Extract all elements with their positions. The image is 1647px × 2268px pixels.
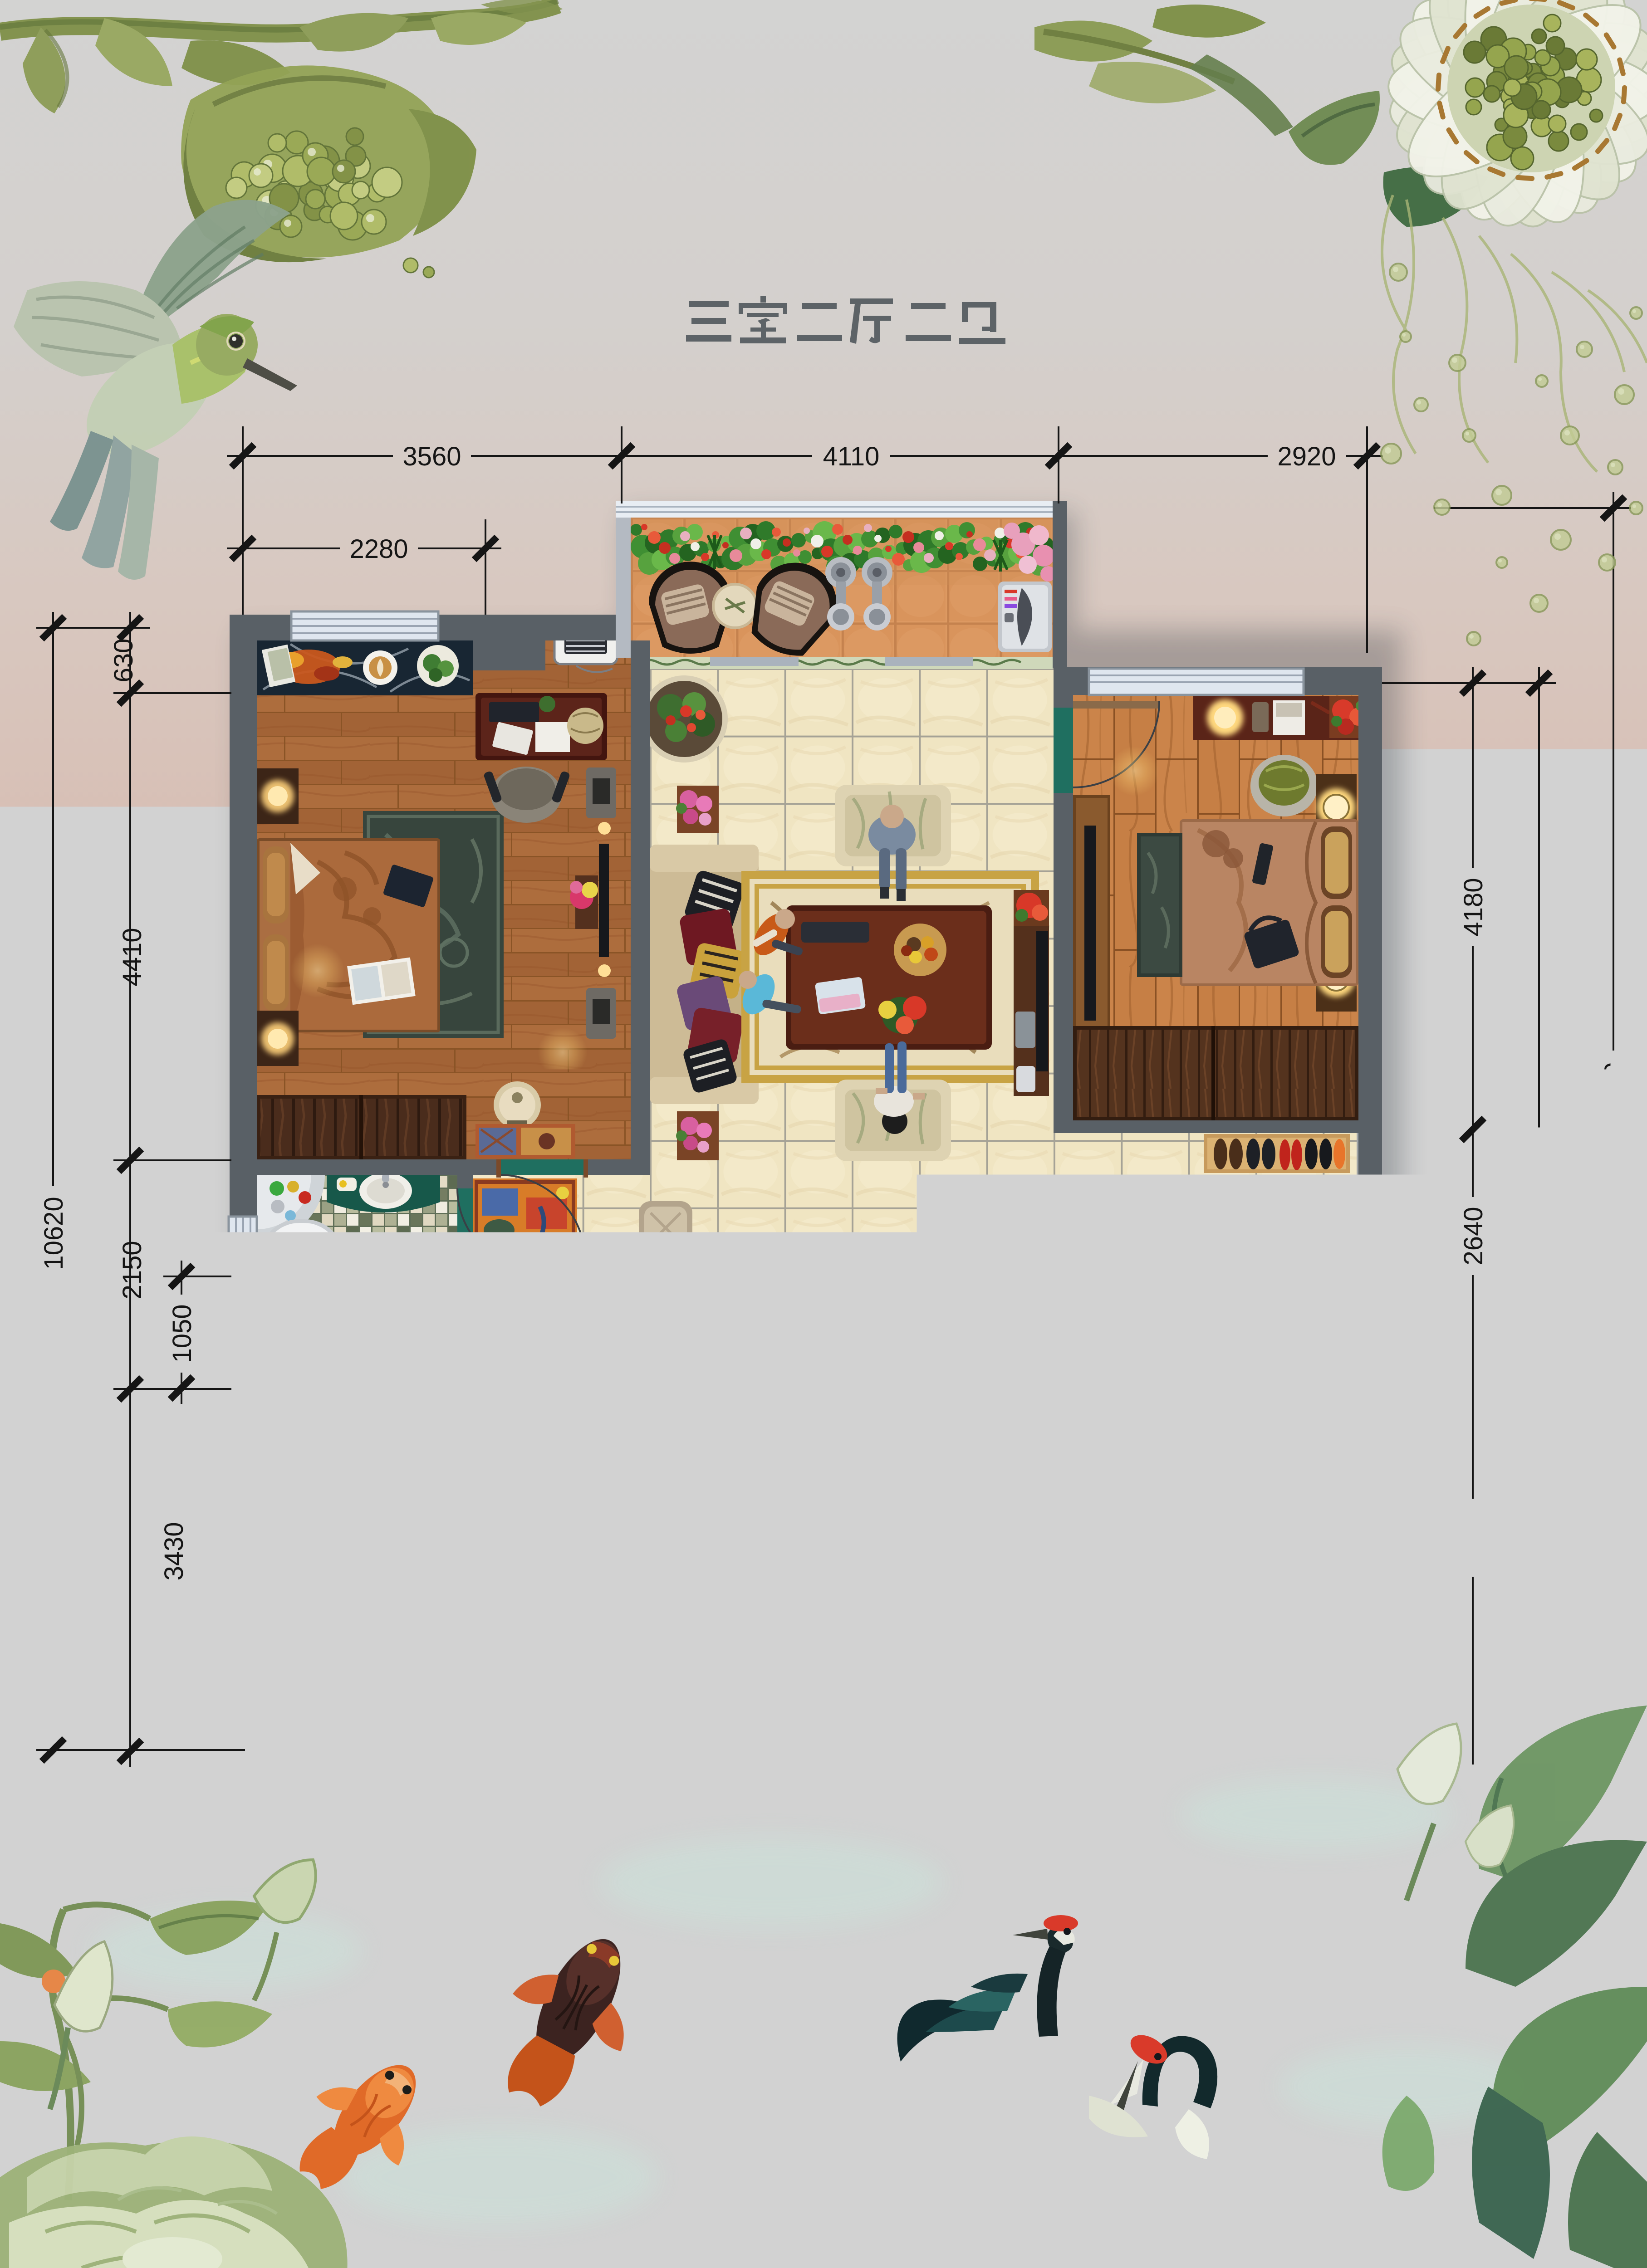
svg-text:2280: 2280 bbox=[349, 534, 408, 564]
svg-text:1860: 1860 bbox=[670, 1823, 728, 1853]
svg-text:4180: 4180 bbox=[1459, 878, 1488, 936]
svg-text:3380: 3380 bbox=[393, 1823, 451, 1853]
svg-text:1050: 1050 bbox=[167, 1304, 197, 1363]
svg-text:630: 630 bbox=[109, 639, 138, 683]
svg-text:2920: 2920 bbox=[1277, 442, 1336, 471]
svg-text:2640: 2640 bbox=[1459, 1207, 1488, 1265]
svg-text:10620: 10620 bbox=[39, 1197, 69, 1270]
svg-text:10110: 10110 bbox=[1525, 1189, 1554, 1261]
svg-text:3290: 3290 bbox=[1459, 1508, 1488, 1567]
svg-text:4110: 4110 bbox=[823, 442, 880, 471]
svg-text:3430: 3430 bbox=[159, 1522, 189, 1580]
svg-text:4410: 4410 bbox=[118, 928, 147, 986]
svg-text:11760: 11760 bbox=[1599, 1062, 1629, 1134]
svg-text:2150: 2150 bbox=[118, 1241, 147, 1299]
svg-text:2890: 2890 bbox=[921, 1823, 980, 1853]
svg-text:2080: 2080 bbox=[327, 1791, 385, 1821]
svg-text:2470: 2470 bbox=[1204, 1823, 1262, 1853]
svg-text:3560: 3560 bbox=[402, 442, 461, 471]
